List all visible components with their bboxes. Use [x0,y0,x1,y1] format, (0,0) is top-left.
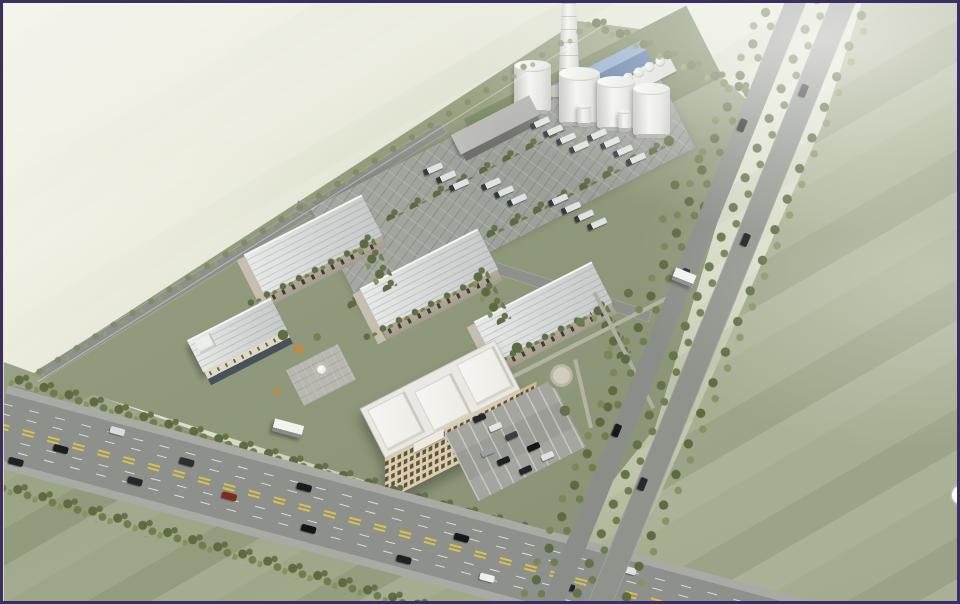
car [300,524,316,535]
rendering-canvas [0,0,960,604]
rooftop-box [194,333,216,354]
car [8,457,24,468]
small-tank [577,105,591,124]
car [109,426,125,437]
car [296,482,312,493]
car [479,572,495,583]
car [453,532,469,543]
car [221,491,237,502]
fountain [317,365,326,374]
car [396,554,412,565]
small-tank [618,111,631,129]
car [179,457,195,468]
car [127,476,143,487]
